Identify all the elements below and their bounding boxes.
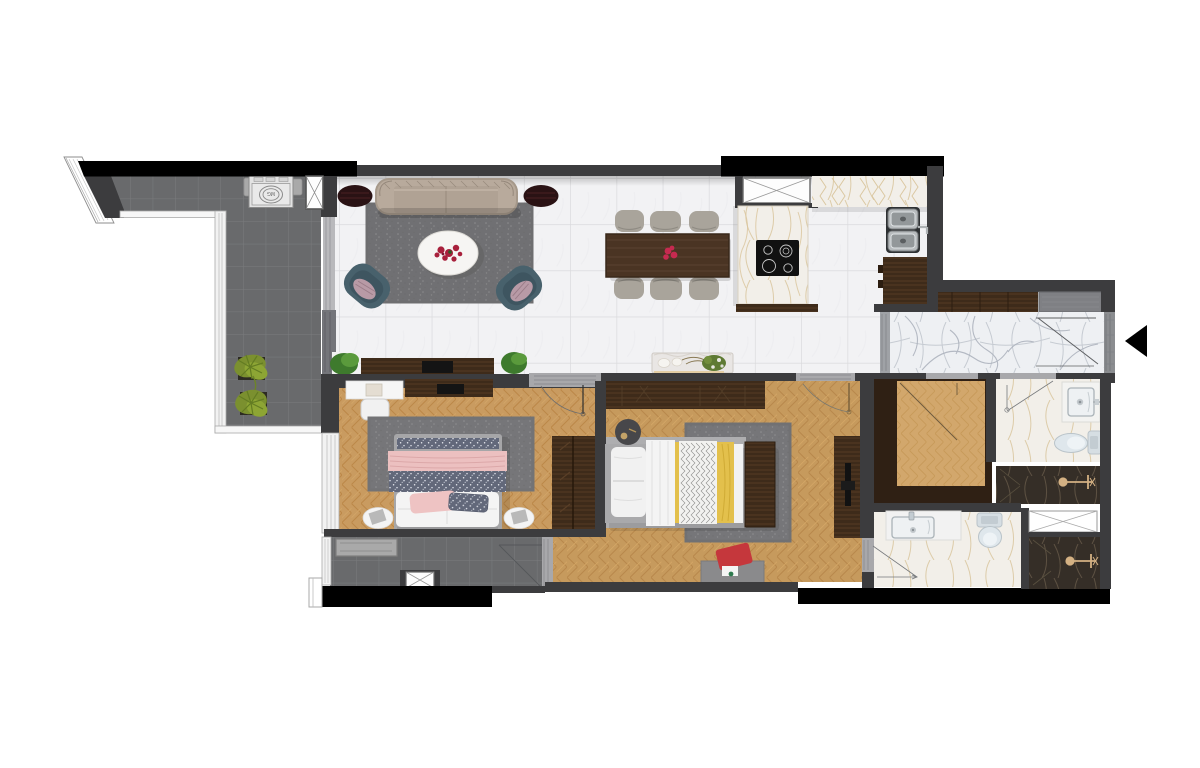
svg-text:MG: MG: [267, 190, 275, 196]
